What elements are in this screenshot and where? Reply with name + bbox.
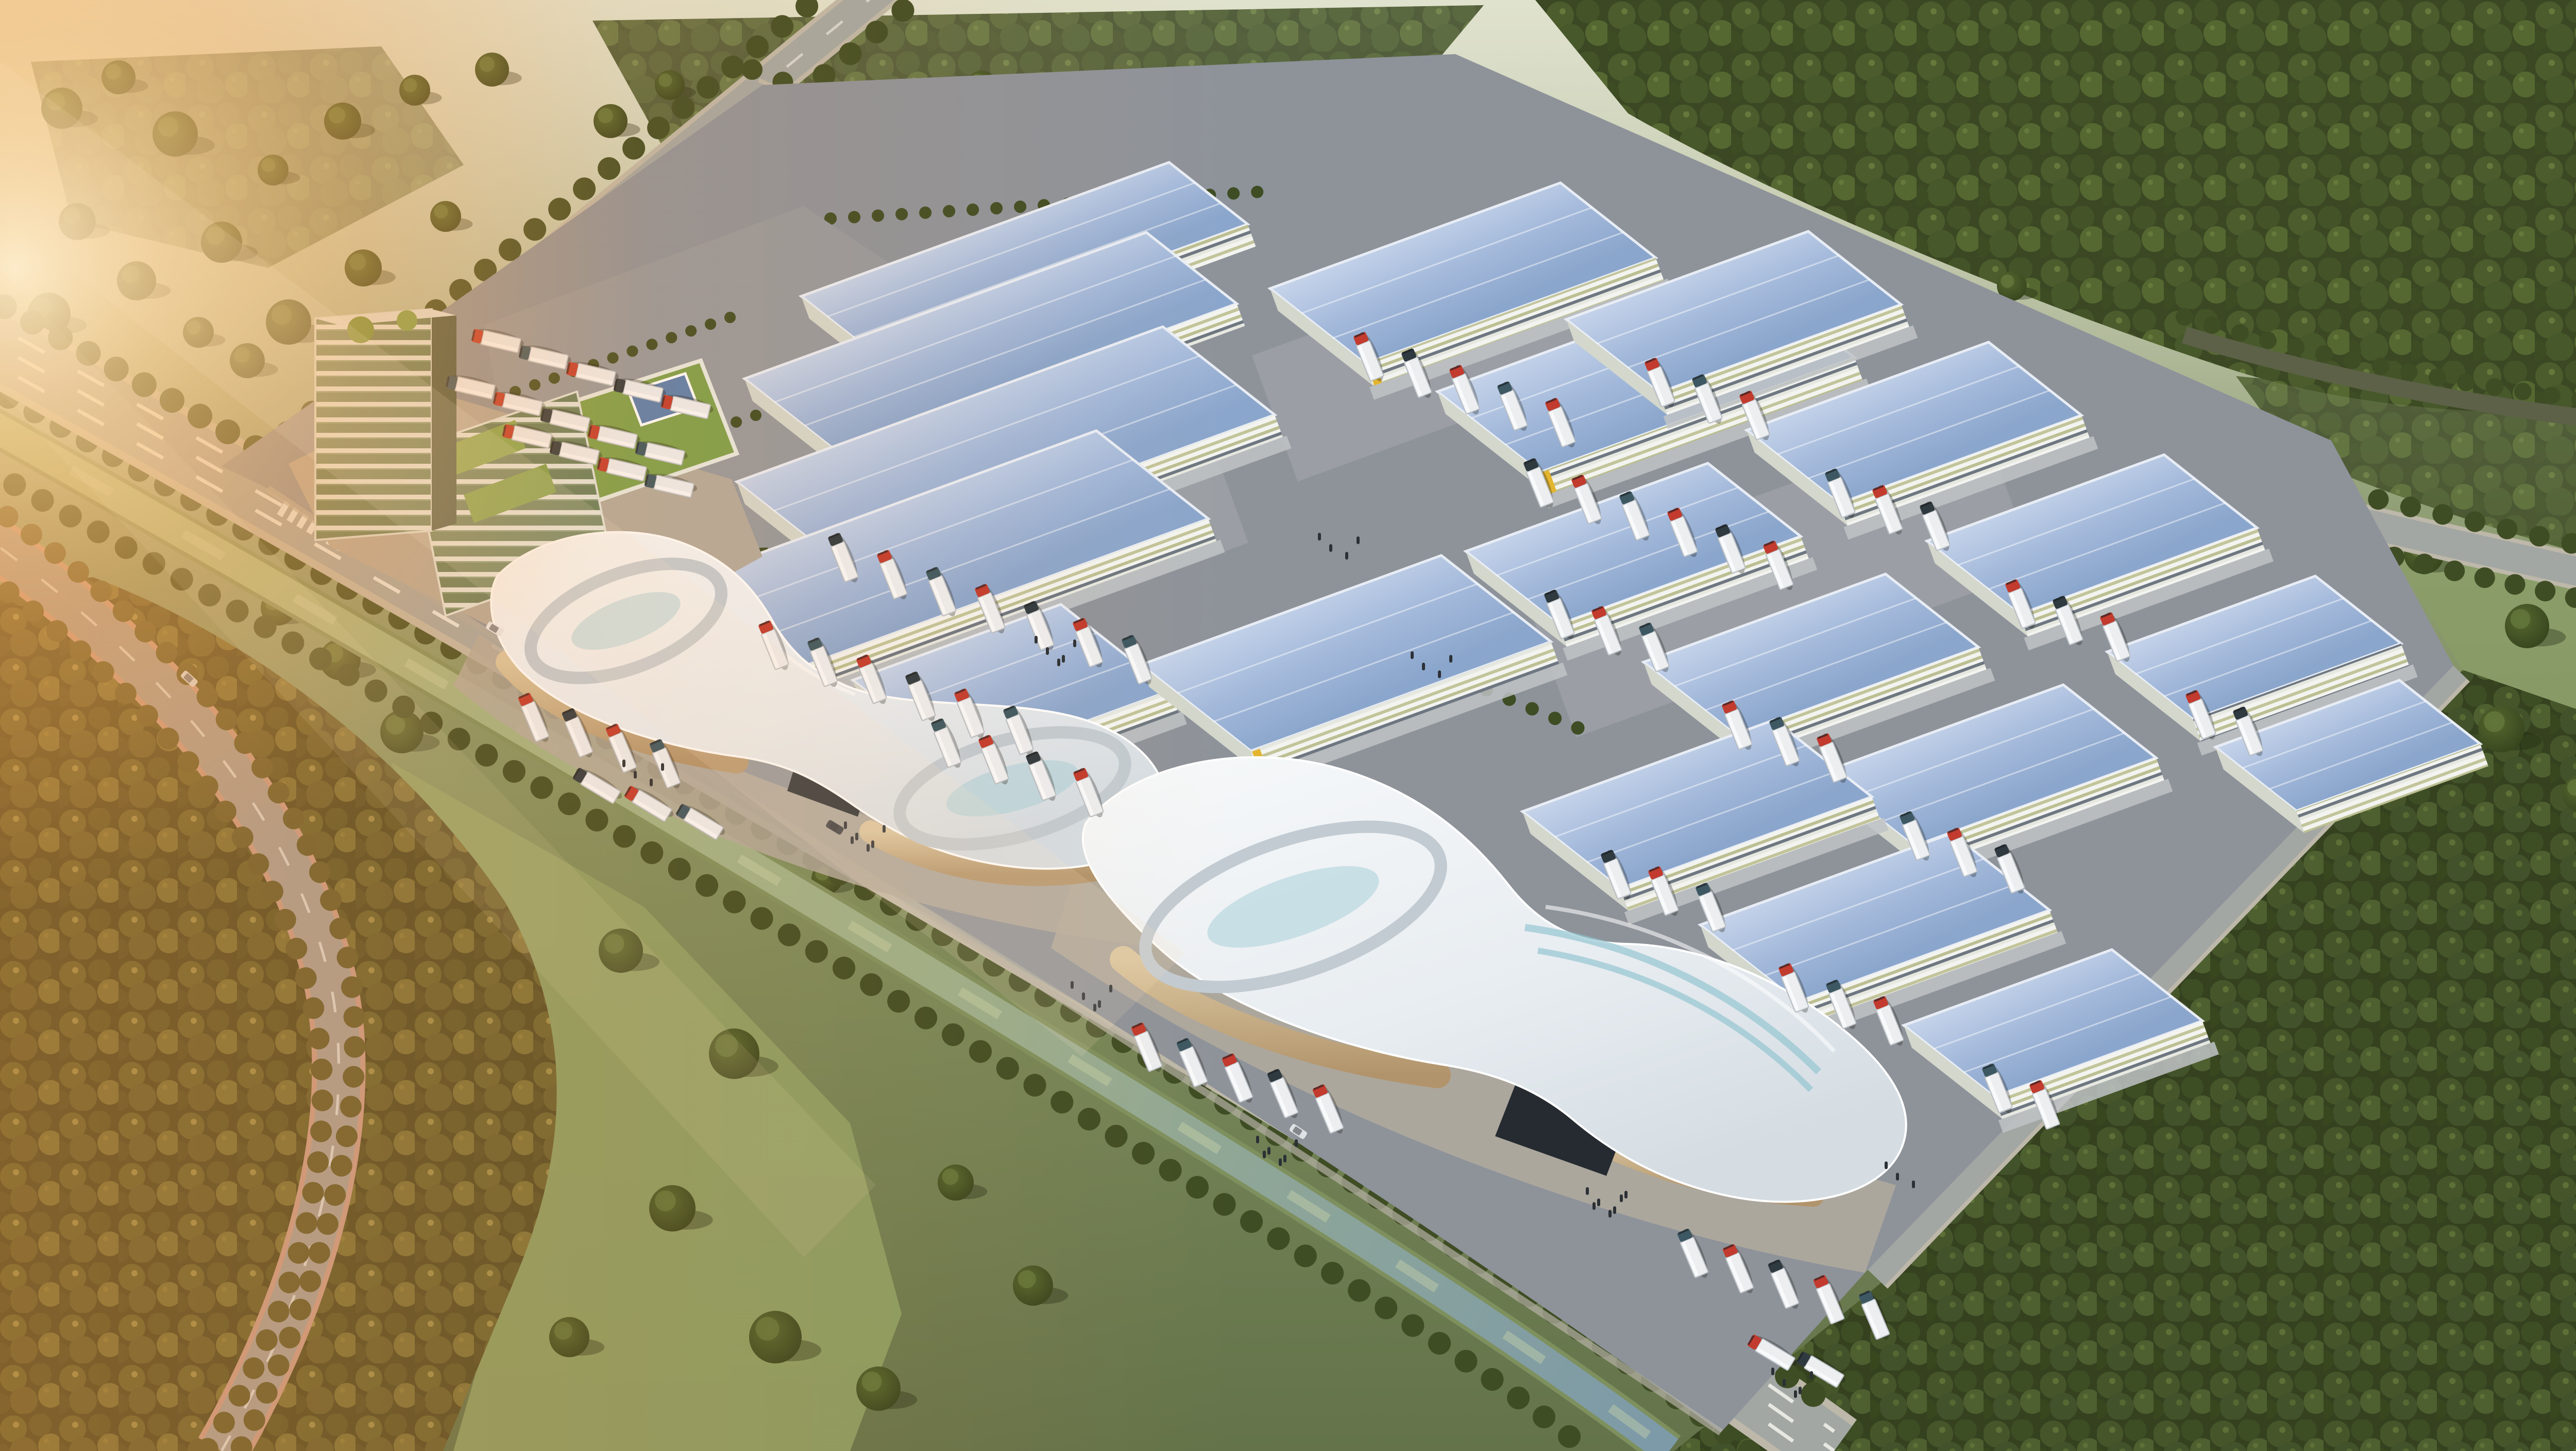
person [1799,1387,1802,1394]
person [1318,533,1321,541]
person [1422,663,1425,670]
person [1624,1191,1628,1199]
person [1912,1180,1915,1188]
rendering-canvas [0,0,2576,1451]
person [1896,1173,1899,1180]
person [1783,1379,1786,1387]
person [1329,544,1332,552]
person [1357,536,1360,544]
person [1771,1368,1774,1375]
person [1885,1161,1888,1169]
person [1279,1158,1282,1166]
person [1608,1210,1612,1218]
person [1592,1202,1596,1210]
person [1620,1194,1623,1202]
person [1586,1187,1589,1195]
person [1263,1151,1266,1158]
person [1810,1371,1813,1379]
person [1267,1147,1270,1155]
person [1411,651,1414,659]
person [1345,552,1348,560]
person [1283,1155,1286,1162]
person [1794,1390,1797,1398]
person [1295,1139,1298,1147]
aerial-rendering [0,0,2576,1451]
person [1256,1136,1259,1143]
person [1438,670,1441,678]
person [1613,1206,1616,1214]
person [1449,655,1452,663]
person [1597,1199,1600,1206]
